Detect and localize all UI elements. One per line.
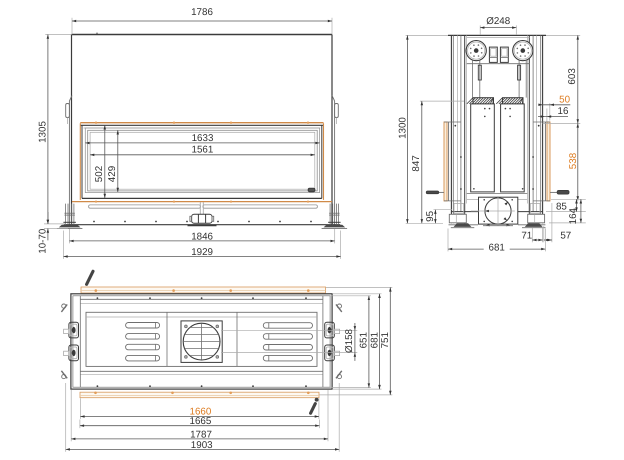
svg-text:681: 681	[369, 332, 380, 348]
svg-text:651: 651	[359, 332, 370, 348]
svg-text:50: 50	[559, 94, 570, 105]
svg-text:1786: 1786	[191, 7, 213, 18]
svg-text:1787: 1787	[190, 429, 212, 440]
svg-text:429: 429	[107, 166, 118, 182]
svg-text:164: 164	[568, 207, 579, 224]
svg-text:538: 538	[568, 152, 579, 169]
svg-text:847: 847	[411, 155, 422, 171]
svg-text:502: 502	[94, 166, 105, 182]
svg-text:603: 603	[567, 68, 578, 85]
svg-text:1665: 1665	[190, 416, 212, 427]
svg-text:95: 95	[425, 210, 436, 221]
svg-text:10-70: 10-70	[37, 228, 48, 254]
svg-text:1929: 1929	[191, 247, 213, 258]
svg-text:1846: 1846	[191, 231, 213, 242]
svg-text:751: 751	[380, 332, 391, 348]
svg-text:Ø158: Ø158	[344, 328, 355, 353]
svg-text:1300: 1300	[397, 117, 408, 139]
svg-text:681: 681	[489, 242, 505, 253]
svg-text:71: 71	[521, 230, 532, 241]
svg-text:16: 16	[558, 106, 569, 117]
svg-text:1305: 1305	[38, 121, 49, 143]
svg-text:1561: 1561	[192, 145, 214, 156]
svg-text:57: 57	[560, 230, 571, 241]
svg-text:1633: 1633	[192, 133, 214, 144]
svg-text:Ø248: Ø248	[486, 16, 511, 27]
svg-text:85: 85	[556, 202, 567, 213]
svg-text:1903: 1903	[191, 440, 213, 451]
